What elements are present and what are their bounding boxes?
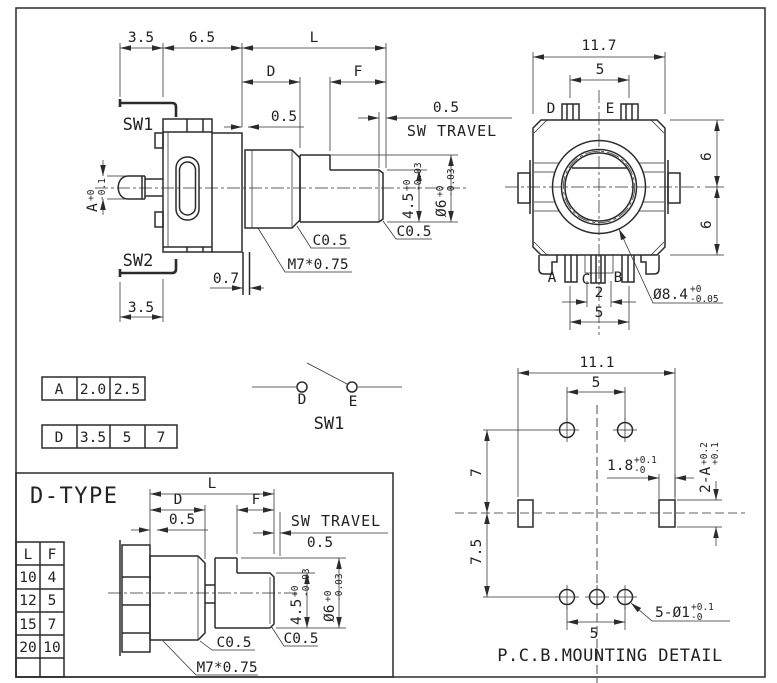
sw-travel-label: SW TRAVEL xyxy=(407,122,497,140)
dt-flat-dim-value: 4.5 xyxy=(289,599,305,625)
pcb-slot-height-value: 2-A xyxy=(698,467,714,493)
shaft-dia-tol-dn: -0.03 xyxy=(446,168,457,197)
pin-b-label: B xyxy=(614,270,623,286)
pcb-slot-height-tol-up: +0.2 xyxy=(699,442,710,465)
pcb-dim-7: 7 xyxy=(469,468,485,477)
pcb-holes-tol-dn: -0 xyxy=(691,612,703,623)
pcb-dim-5-bottom: 5 xyxy=(590,626,599,642)
dim-6-5: 6.5 xyxy=(189,30,215,46)
flat-dim-tol-dn: -0.03 xyxy=(413,162,424,191)
pcb-dim-5-top: 5 xyxy=(592,375,601,391)
table-d-val3: 7 xyxy=(157,430,166,446)
sw2-label: SW2 xyxy=(123,251,154,271)
sw-travel-value: 0.5 xyxy=(433,100,459,116)
table-a-val1: 2.0 xyxy=(80,382,106,398)
dt-flat-dim-tol-up: +0 xyxy=(290,585,301,597)
dt-dim-F: F xyxy=(252,492,261,508)
dim-3-5-top: 3.5 xyxy=(128,30,154,46)
dim-0-5-plate: 0.5 xyxy=(271,109,297,125)
front-view: 11.7 5 D E 6 6 A C B 2 5 Ø8.4 +0 -0.05 xyxy=(505,38,724,335)
bushing-dia-value: Ø8.4 xyxy=(653,287,688,303)
dt-chamfer-shaft: C0.5 xyxy=(284,631,319,647)
lf-r3c2: 7 xyxy=(48,617,57,633)
pcb-mounting-detail: 11.1 5 7 7.5 1.8 +0.1 -0 2-A +0.2 +0.1 5 xyxy=(455,355,745,683)
engineering-drawing-sheet: 3.5 6.5 L D F 0.5 0.5 SW TRAVEL SW1 SW2 … xyxy=(0,0,777,683)
dt-dim-L: L xyxy=(208,476,217,492)
dt-thread-spec: M7*0.75 xyxy=(196,660,257,676)
lf-r4c1: 20 xyxy=(19,640,36,656)
flat-dim-tol-up: +0 xyxy=(402,179,413,191)
pcb-slot-left xyxy=(518,500,533,527)
lf-r2c2: 5 xyxy=(48,593,57,609)
param-table-d: D 3.5 5 7 xyxy=(42,425,177,448)
dim-11-7: 11.7 xyxy=(582,38,617,54)
dim-3-5-bottom: 3.5 xyxy=(128,300,154,316)
dim-2: 2 xyxy=(595,285,604,301)
pin-c-label: C xyxy=(582,272,591,288)
sw1-label: SW1 xyxy=(123,115,154,135)
table-d-val2: 5 xyxy=(123,430,132,446)
pcb-holes xyxy=(555,418,637,609)
dt-chamfer-bushing: C0.5 xyxy=(217,635,252,651)
sw1-schematic: D E SW1 xyxy=(252,363,402,434)
d-type-panel: D-TYPE L F 10 4 12 5 15 7 20 10 L D xyxy=(16,473,393,677)
pcb-dim-7-5-value: 7.5 xyxy=(469,539,485,565)
dim-5-bottom: 5 xyxy=(595,305,604,321)
dt-dim-D: D xyxy=(174,492,183,508)
dt-flat-dim: 4.5 +0 -0.03 xyxy=(289,568,312,625)
pcb-slot-right xyxy=(659,500,675,527)
dt-shaft-dia-value: Ø6 xyxy=(322,605,338,622)
pcb-slot-height: 2-A +0.2 +0.1 xyxy=(698,442,721,493)
pcb-holes-value: 5-Ø1 xyxy=(655,605,690,621)
pcb-detail-title: P.C.B.MOUNTING DETAIL xyxy=(497,646,722,666)
dim-6-lower-value: 6 xyxy=(699,220,715,229)
dt-shaft-dia-tol-up: +0 xyxy=(323,590,334,602)
lf-r1c2: 4 xyxy=(48,570,57,586)
dt-flat-dim-tol-dn: -0.03 xyxy=(301,568,312,597)
schematic-title: SW1 xyxy=(314,414,345,434)
table-a-key: A xyxy=(55,382,64,398)
button-dim-value: A xyxy=(85,203,101,212)
chamfer-bushing-label: C0.5 xyxy=(313,233,348,249)
dt-shaft-dia-tol-dn: -0.03 xyxy=(334,573,345,602)
dt-shaft-dia: Ø6 +0 -0.03 xyxy=(322,573,345,622)
lf-r2c1: 12 xyxy=(19,593,36,609)
thread-spec-label: M7*0.75 xyxy=(287,257,348,273)
table-d-key: D xyxy=(55,430,64,446)
pcb-dim-11-1: 11.1 xyxy=(580,355,615,371)
lf-r3c1: 15 xyxy=(19,617,36,633)
dim-L: L xyxy=(310,30,319,46)
flat-dim: 4.5 +0 -0.03 xyxy=(401,162,424,219)
shaft-dia-value: Ø6 xyxy=(434,200,450,217)
dim-6-lower: 6 xyxy=(699,220,715,229)
pcb-slot-width-tol-dn: -0 xyxy=(634,465,646,476)
pcb-dim-7-value: 7 xyxy=(469,468,485,477)
dt-dim-0-5: 0.5 xyxy=(169,512,195,528)
lf-r4c2: 10 xyxy=(43,640,60,656)
flat-dim-value: 4.5 xyxy=(401,193,417,219)
pcb-dim-7-5: 7.5 xyxy=(469,539,485,565)
shaft-dia-tol-up: +0 xyxy=(435,185,446,197)
dim-D: D xyxy=(267,64,276,80)
d-type-table: L F 10 4 12 5 15 7 20 10 xyxy=(16,542,64,677)
dt-sw-travel-label: SW TRAVEL xyxy=(291,512,381,530)
dim-5-top: 5 xyxy=(596,62,605,78)
dim-6-upper-value: 6 xyxy=(699,152,715,161)
table-d-val1: 3.5 xyxy=(80,430,106,446)
dt-sw-travel-value: 0.5 xyxy=(307,535,333,551)
dim-0-7: 0.7 xyxy=(213,271,239,287)
drawing-canvas: 3.5 6.5 L D F 0.5 0.5 SW TRAVEL SW1 SW2 … xyxy=(0,0,777,683)
pcb-slot-width-value: 1.8 xyxy=(607,458,633,474)
schematic-pin-d: D xyxy=(298,392,307,408)
button-dim-tol-dn: -0.1 xyxy=(97,178,108,201)
bushing-dia-tol-dn: -0.05 xyxy=(690,294,719,305)
lf-header-l: L xyxy=(24,547,33,563)
pin-a-label: A xyxy=(548,270,557,286)
d-type-title: D-TYPE xyxy=(30,484,118,509)
pin-d-label: D xyxy=(547,101,556,117)
pcb-slot-height-tol-dn: +0.1 xyxy=(710,442,721,465)
side-view: 3.5 6.5 L D F 0.5 0.5 SW TRAVEL SW1 SW2 … xyxy=(85,30,512,322)
lf-header-f: F xyxy=(48,547,57,563)
table-a-val2: 2.5 xyxy=(114,382,140,398)
chamfer-shaft-label: C0.5 xyxy=(397,224,432,240)
schematic-pin-e: E xyxy=(349,394,358,410)
button-dim: A +0 -0.1 xyxy=(85,178,108,212)
button-dim-tol-up: +0 xyxy=(86,189,97,201)
dim-6-upper: 6 xyxy=(699,152,715,161)
shaft-dia-dim: Ø6 +0 -0.03 xyxy=(434,168,457,217)
param-table-a: A 2.0 2.5 xyxy=(42,377,145,400)
lf-r1c1: 10 xyxy=(19,570,36,586)
dim-F: F xyxy=(354,64,363,80)
pin-e-label: E xyxy=(606,101,615,117)
